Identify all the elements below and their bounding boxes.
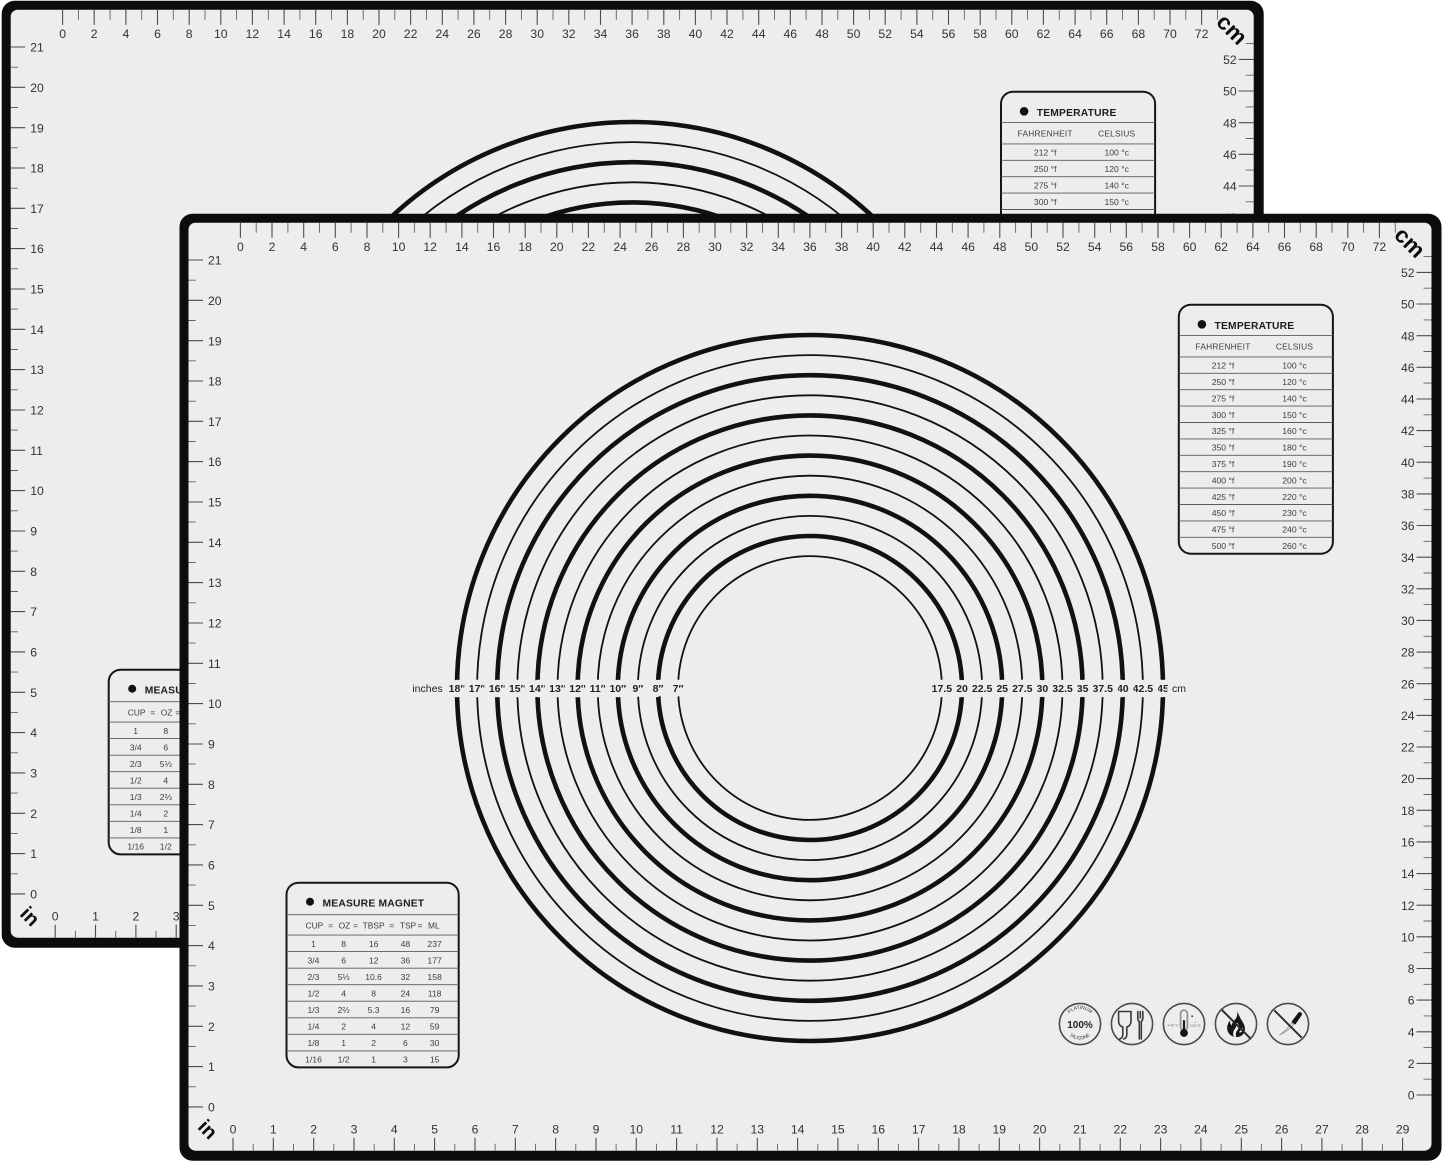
svg-text:1/16: 1/16	[127, 842, 144, 852]
svg-text:50: 50	[1401, 298, 1415, 312]
svg-text:28: 28	[1401, 646, 1415, 660]
svg-text:10: 10	[630, 1123, 644, 1137]
svg-text:64: 64	[1246, 240, 1260, 254]
svg-text:1/16: 1/16	[305, 1055, 322, 1065]
svg-text:18: 18	[341, 27, 355, 41]
svg-text:46: 46	[1401, 361, 1415, 375]
svg-text:8: 8	[186, 27, 193, 41]
svg-text:21: 21	[30, 41, 44, 55]
svg-text:46: 46	[1223, 148, 1237, 162]
svg-text:16: 16	[1401, 836, 1415, 850]
svg-text:1: 1	[311, 939, 316, 949]
svg-text:58: 58	[973, 27, 987, 41]
svg-text:18′′: 18′′	[449, 683, 466, 695]
svg-text:50: 50	[847, 27, 861, 41]
svg-text:14: 14	[1401, 867, 1415, 881]
svg-text:2⅔: 2⅔	[338, 1005, 350, 1015]
svg-text:22: 22	[1401, 741, 1415, 755]
svg-text:OZ: OZ	[339, 920, 351, 930]
svg-text:3: 3	[173, 910, 180, 924]
svg-text:TEMPERATURE: TEMPERATURE	[1037, 108, 1117, 119]
svg-text:375 °f: 375 °f	[1212, 459, 1235, 469]
svg-text:42: 42	[1401, 424, 1415, 438]
svg-text:16: 16	[309, 27, 323, 41]
svg-text:12: 12	[246, 27, 260, 41]
svg-text:72: 72	[1195, 27, 1209, 41]
svg-text:5: 5	[30, 686, 37, 700]
svg-text:1: 1	[208, 1060, 215, 1074]
svg-text:62: 62	[1214, 240, 1228, 254]
svg-text:12: 12	[30, 404, 44, 418]
svg-text:1/3: 1/3	[130, 792, 142, 802]
svg-text:4: 4	[208, 939, 215, 953]
svg-text:54: 54	[910, 27, 924, 41]
svg-text:8′′: 8′′	[653, 683, 664, 695]
svg-text:325 °f: 325 °f	[1212, 426, 1235, 436]
svg-text:12: 12	[369, 955, 379, 965]
svg-text:24: 24	[1401, 709, 1415, 723]
svg-text:52: 52	[1056, 240, 1070, 254]
svg-text:120 °c: 120 °c	[1282, 377, 1307, 387]
svg-text:4: 4	[391, 1123, 398, 1137]
svg-text:1: 1	[163, 825, 168, 835]
svg-text:26: 26	[467, 27, 481, 41]
svg-text:36: 36	[401, 955, 411, 965]
svg-text:36: 36	[803, 240, 817, 254]
svg-text:0: 0	[237, 240, 244, 254]
svg-text:9′′: 9′′	[632, 683, 643, 695]
svg-text:0: 0	[59, 27, 66, 41]
svg-text:10: 10	[1401, 930, 1415, 944]
svg-text:22: 22	[582, 240, 596, 254]
svg-text:22: 22	[1114, 1123, 1128, 1137]
svg-text:16: 16	[487, 240, 501, 254]
svg-text:40: 40	[1401, 456, 1415, 470]
svg-text:6: 6	[1408, 994, 1415, 1008]
svg-text:40: 40	[689, 27, 703, 41]
svg-text:2: 2	[133, 910, 140, 924]
svg-text:7: 7	[30, 605, 37, 619]
svg-text:27: 27	[1315, 1123, 1329, 1137]
svg-text:- 40°C: - 40°C	[1168, 1023, 1179, 1028]
svg-text:4: 4	[1408, 1025, 1415, 1039]
svg-text:2: 2	[310, 1123, 317, 1137]
svg-text:20: 20	[1033, 1123, 1047, 1137]
svg-text:23: 23	[1154, 1123, 1168, 1137]
svg-text:0: 0	[230, 1123, 237, 1137]
svg-text:3: 3	[208, 980, 215, 994]
svg-text:25: 25	[996, 683, 1008, 695]
svg-text:12: 12	[423, 240, 437, 254]
svg-text:12′′: 12′′	[569, 683, 586, 695]
svg-text:68: 68	[1132, 27, 1146, 41]
svg-text:11: 11	[30, 444, 43, 458]
svg-text:4: 4	[123, 27, 130, 41]
svg-text:8: 8	[163, 726, 168, 736]
svg-text:32.5: 32.5	[1052, 683, 1073, 695]
svg-text:11: 11	[670, 1123, 683, 1137]
svg-text:1: 1	[133, 726, 138, 736]
svg-text:7: 7	[208, 818, 215, 832]
svg-text:100 °c: 100 °c	[1282, 361, 1307, 371]
svg-text:0: 0	[30, 888, 37, 902]
svg-text:52: 52	[1223, 53, 1237, 67]
svg-text:425 °f: 425 °f	[1212, 492, 1235, 502]
svg-text:48: 48	[993, 240, 1007, 254]
svg-text:2/3: 2/3	[130, 759, 142, 769]
svg-text:17: 17	[912, 1123, 926, 1137]
svg-text:56: 56	[1120, 240, 1134, 254]
svg-text:17′′: 17′′	[469, 683, 486, 695]
svg-text:70: 70	[1163, 27, 1177, 41]
svg-text:2: 2	[208, 1020, 215, 1034]
svg-text:177: 177	[427, 955, 442, 965]
svg-text:15: 15	[831, 1123, 845, 1137]
svg-text:10: 10	[30, 484, 44, 498]
svg-text:3: 3	[30, 767, 37, 781]
svg-text:32: 32	[1401, 582, 1415, 596]
svg-text:275 °f: 275 °f	[1212, 393, 1235, 403]
svg-text:10: 10	[208, 697, 222, 711]
svg-text:14′′: 14′′	[529, 683, 546, 695]
svg-text:8: 8	[341, 939, 346, 949]
svg-text:2: 2	[341, 1022, 346, 1032]
svg-text:66: 66	[1100, 27, 1114, 41]
svg-text:300 °f: 300 °f	[1212, 410, 1235, 420]
svg-text:6: 6	[332, 240, 339, 254]
svg-text:30: 30	[1401, 614, 1415, 628]
svg-text:6: 6	[341, 955, 346, 965]
svg-text:100 °c: 100 °c	[1104, 148, 1129, 158]
svg-text:28: 28	[1355, 1123, 1369, 1137]
svg-text:66: 66	[1278, 240, 1292, 254]
svg-text:42: 42	[720, 27, 734, 41]
svg-text:1/2: 1/2	[160, 842, 172, 852]
svg-text:48: 48	[401, 939, 411, 949]
svg-text:20: 20	[956, 683, 968, 695]
svg-text:17.5: 17.5	[932, 683, 953, 695]
svg-text:21: 21	[208, 254, 222, 268]
svg-text:46: 46	[784, 27, 798, 41]
svg-text:3/4: 3/4	[130, 742, 142, 752]
svg-text:2: 2	[163, 809, 168, 819]
svg-text:TEMPERATURE: TEMPERATURE	[1215, 321, 1295, 332]
svg-text:13′′: 13′′	[549, 683, 566, 695]
svg-text:ML: ML	[428, 920, 440, 930]
svg-text:50: 50	[1223, 85, 1237, 99]
svg-text:16: 16	[401, 1005, 411, 1015]
svg-text:inches: inches	[412, 683, 442, 695]
svg-text:12: 12	[1401, 899, 1415, 913]
svg-text:4: 4	[341, 989, 346, 999]
svg-text:1: 1	[371, 1055, 376, 1065]
svg-text:29: 29	[1396, 1123, 1410, 1137]
svg-text:15: 15	[30, 283, 44, 297]
svg-text:1/3: 1/3	[308, 1005, 320, 1015]
svg-text:6: 6	[208, 859, 215, 873]
svg-text:250 °f: 250 °f	[1034, 164, 1057, 174]
svg-text:30: 30	[708, 240, 722, 254]
svg-text:12: 12	[710, 1123, 724, 1137]
svg-text:6: 6	[163, 742, 168, 752]
svg-text:28: 28	[677, 240, 691, 254]
svg-text:2: 2	[1408, 1057, 1415, 1071]
svg-text:275 °f: 275 °f	[1034, 180, 1057, 190]
svg-text:38: 38	[835, 240, 849, 254]
svg-text:10′′: 10′′	[609, 683, 626, 695]
svg-text:7: 7	[512, 1123, 519, 1137]
svg-text:190 °c: 190 °c	[1282, 459, 1307, 469]
svg-text:158: 158	[427, 972, 442, 982]
svg-text:13: 13	[751, 1123, 765, 1137]
svg-text:400 °f: 400 °f	[1212, 475, 1235, 485]
svg-text:62: 62	[1037, 27, 1051, 41]
svg-text:1: 1	[341, 1038, 346, 1048]
svg-text:FAHRENHEIT: FAHRENHEIT	[1195, 342, 1250, 352]
svg-text:19: 19	[30, 121, 44, 135]
svg-text:4: 4	[163, 776, 168, 786]
svg-text:9: 9	[30, 525, 37, 539]
svg-text:26: 26	[645, 240, 659, 254]
svg-text:11′′: 11′′	[590, 683, 607, 695]
svg-text:FAHRENHEIT: FAHRENHEIT	[1018, 129, 1073, 139]
svg-text:3: 3	[403, 1055, 408, 1065]
svg-text:8: 8	[30, 565, 37, 579]
svg-text:5⅓: 5⅓	[338, 972, 350, 982]
svg-text:68: 68	[1309, 240, 1323, 254]
svg-text:14: 14	[30, 323, 44, 337]
svg-text:8: 8	[364, 240, 371, 254]
svg-text:8: 8	[1408, 962, 1415, 976]
svg-text:4: 4	[300, 240, 307, 254]
svg-text:118: 118	[428, 989, 442, 999]
svg-text:cm: cm	[1172, 683, 1186, 695]
svg-text:10: 10	[392, 240, 406, 254]
svg-text:1/2: 1/2	[130, 776, 142, 786]
svg-text:CUP: CUP	[306, 920, 324, 930]
svg-text:16: 16	[872, 1123, 886, 1137]
svg-text:36: 36	[625, 27, 639, 41]
svg-text:19: 19	[993, 1123, 1007, 1137]
svg-text:450 °f: 450 °f	[1212, 508, 1235, 518]
svg-text:38: 38	[1401, 488, 1415, 502]
svg-text:37.5: 37.5	[1092, 683, 1113, 695]
svg-text:1: 1	[92, 910, 99, 924]
svg-text:34: 34	[772, 240, 786, 254]
svg-text:42: 42	[898, 240, 912, 254]
svg-text:CELSIUS: CELSIUS	[1098, 129, 1135, 139]
svg-text:18: 18	[518, 240, 532, 254]
svg-text:16: 16	[369, 939, 379, 949]
svg-text:45: 45	[1157, 683, 1169, 695]
svg-text:MEASURE MAGNET: MEASURE MAGNET	[323, 898, 425, 909]
svg-text:12: 12	[401, 1022, 411, 1032]
svg-text:42.5: 42.5	[1133, 683, 1154, 695]
svg-text:18: 18	[208, 375, 222, 389]
svg-text:350 °f: 350 °f	[1212, 443, 1235, 453]
svg-text:70: 70	[1341, 240, 1355, 254]
svg-text:1: 1	[30, 847, 37, 861]
svg-text:9: 9	[208, 738, 215, 752]
svg-text:44: 44	[1223, 180, 1237, 194]
svg-text:300 °f: 300 °f	[1034, 197, 1057, 207]
svg-text:35: 35	[1077, 683, 1089, 695]
svg-text:TBSP: TBSP	[363, 920, 385, 930]
svg-text:19: 19	[208, 334, 222, 348]
svg-text:2⅔: 2⅔	[160, 792, 172, 802]
svg-text:150 °c: 150 °c	[1104, 197, 1129, 207]
svg-text:18: 18	[952, 1123, 966, 1137]
svg-text:27.5: 27.5	[1012, 683, 1033, 695]
svg-text:21: 21	[1073, 1123, 1087, 1137]
svg-text:30: 30	[430, 1038, 440, 1048]
svg-text:160 °c: 160 °c	[1282, 426, 1307, 436]
svg-text:240 °c: 240 °c	[1282, 525, 1307, 535]
svg-text:14: 14	[791, 1123, 805, 1137]
svg-text:1: 1	[270, 1123, 277, 1137]
svg-text:6: 6	[154, 27, 161, 41]
svg-text:15′′: 15′′	[509, 683, 526, 695]
svg-text:13: 13	[208, 576, 222, 590]
svg-text:140 °c: 140 °c	[1282, 393, 1307, 403]
svg-text:30: 30	[1037, 683, 1049, 695]
svg-text:46: 46	[961, 240, 975, 254]
svg-text:212 °f: 212 °f	[1212, 361, 1235, 371]
svg-text:15: 15	[430, 1055, 440, 1065]
svg-text:=: =	[150, 707, 155, 717]
svg-text:=: =	[328, 920, 333, 930]
svg-text:40: 40	[866, 240, 880, 254]
svg-text:20: 20	[1401, 772, 1415, 786]
svg-text:1/8: 1/8	[130, 825, 142, 835]
svg-text:2: 2	[269, 240, 276, 254]
svg-text:52: 52	[878, 27, 892, 41]
svg-text:0: 0	[208, 1101, 215, 1115]
svg-text:58: 58	[1151, 240, 1165, 254]
svg-text:17: 17	[208, 415, 222, 429]
svg-text:16: 16	[208, 455, 222, 469]
svg-text:26: 26	[1275, 1123, 1289, 1137]
svg-text:36: 36	[1401, 519, 1415, 533]
svg-text:=: =	[353, 920, 358, 930]
svg-text:6: 6	[472, 1123, 479, 1137]
svg-text:24: 24	[401, 989, 411, 999]
svg-text:1/4: 1/4	[130, 809, 142, 819]
svg-text:34: 34	[1401, 551, 1415, 565]
svg-text:0: 0	[52, 910, 59, 924]
svg-text:11: 11	[208, 657, 221, 671]
svg-text:17: 17	[30, 202, 44, 216]
svg-text:40: 40	[1117, 683, 1129, 695]
svg-text:44: 44	[1401, 393, 1415, 407]
svg-text:250 °f: 250 °f	[1212, 377, 1235, 387]
svg-text:140 °c: 140 °c	[1104, 180, 1129, 190]
svg-text:0: 0	[1408, 1089, 1415, 1103]
svg-text:48: 48	[1401, 329, 1415, 343]
svg-text:64: 64	[1068, 27, 1082, 41]
svg-text:3/4: 3/4	[308, 955, 320, 965]
svg-text:260 °c: 260 °c	[1282, 541, 1307, 551]
svg-text:4: 4	[30, 726, 37, 740]
svg-text:50: 50	[1025, 240, 1039, 254]
svg-text:20: 20	[30, 81, 44, 95]
svg-text:9: 9	[593, 1123, 600, 1137]
svg-text:5: 5	[431, 1123, 438, 1137]
svg-text:16: 16	[30, 242, 44, 256]
svg-text:59: 59	[430, 1022, 440, 1032]
svg-text:15: 15	[208, 496, 222, 510]
svg-text:48: 48	[1223, 116, 1237, 130]
svg-text:5: 5	[208, 899, 215, 913]
svg-text:230 °c: 230 °c	[1282, 508, 1307, 518]
svg-text:14: 14	[277, 27, 291, 41]
svg-text:25: 25	[1235, 1123, 1249, 1137]
svg-text:48: 48	[815, 27, 829, 41]
svg-text:2/3: 2/3	[308, 972, 320, 982]
svg-text:CELSIUS: CELSIUS	[1276, 342, 1313, 352]
svg-text:2: 2	[371, 1038, 376, 1048]
svg-text:30: 30	[530, 27, 544, 41]
svg-text:32: 32	[740, 240, 754, 254]
svg-text:72: 72	[1373, 240, 1387, 254]
svg-text:34: 34	[594, 27, 608, 41]
svg-text:150 °c: 150 °c	[1282, 410, 1307, 420]
svg-text:14: 14	[455, 240, 469, 254]
svg-text:2: 2	[30, 807, 37, 821]
svg-text:=: =	[418, 920, 423, 930]
svg-text:22.5: 22.5	[972, 683, 993, 695]
svg-text:32: 32	[562, 27, 576, 41]
svg-text:5.3: 5.3	[368, 1005, 380, 1015]
svg-text:120 °c: 120 °c	[1104, 164, 1129, 174]
svg-text:38: 38	[657, 27, 671, 41]
svg-text:8: 8	[208, 778, 215, 792]
svg-text:10: 10	[214, 27, 228, 41]
svg-text:20: 20	[550, 240, 564, 254]
svg-text:3: 3	[351, 1123, 358, 1137]
svg-text:18: 18	[30, 162, 44, 176]
svg-text:212 °f: 212 °f	[1034, 148, 1057, 158]
svg-text:60: 60	[1005, 27, 1019, 41]
svg-text:CUP: CUP	[128, 707, 146, 717]
svg-text:12: 12	[208, 617, 222, 631]
svg-text:52: 52	[1401, 266, 1415, 280]
svg-text:5⅓: 5⅓	[160, 759, 172, 769]
svg-text:1/2: 1/2	[308, 989, 320, 999]
svg-text:18: 18	[1401, 804, 1415, 818]
svg-text:220 °c: 220 °c	[1282, 492, 1307, 502]
svg-text:8: 8	[552, 1123, 559, 1137]
svg-text:237: 237	[427, 939, 442, 949]
svg-text:22: 22	[404, 27, 418, 41]
svg-text:20: 20	[372, 27, 386, 41]
svg-text:24: 24	[1194, 1123, 1208, 1137]
svg-text:28: 28	[499, 27, 513, 41]
svg-text:TSP: TSP	[400, 920, 417, 930]
svg-text:24: 24	[613, 240, 627, 254]
svg-text:60: 60	[1183, 240, 1197, 254]
svg-text:6: 6	[403, 1038, 408, 1048]
svg-text:16′′: 16′′	[489, 683, 506, 695]
svg-text:44: 44	[752, 27, 766, 41]
svg-text:7′′: 7′′	[673, 683, 684, 695]
svg-text:20: 20	[208, 294, 222, 308]
svg-text:1/2: 1/2	[338, 1055, 350, 1065]
svg-text:14: 14	[208, 536, 222, 550]
svg-text:54: 54	[1088, 240, 1102, 254]
svg-text:32: 32	[401, 972, 411, 982]
svg-text:4: 4	[371, 1022, 376, 1032]
